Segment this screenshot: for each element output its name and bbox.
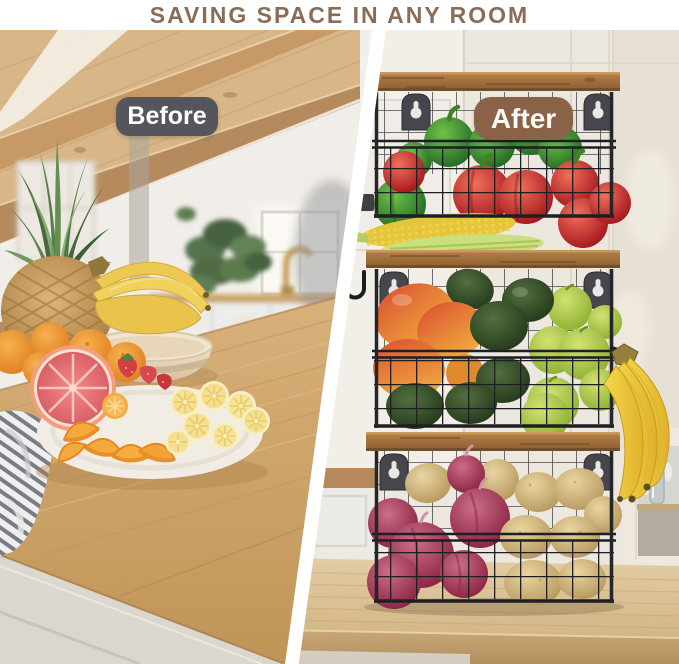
wood-lid-top [366,72,620,91]
after-label-pill: After [474,97,573,140]
banner-title: SAVING SPACE IN ANY ROOM [150,2,529,29]
basket-tier-bottom [366,432,622,609]
basket-tier-middle [346,250,622,441]
wood-lid-middle [366,250,620,268]
wood-lid-bottom [366,432,620,451]
wall-mount-bracket [584,94,612,130]
wall-mount-bracket [380,454,408,490]
wall-bar [350,194,374,211]
before-after-photos: Before After [0,30,679,664]
wall-mount-bracket [402,94,430,130]
before-label: Before [127,102,206,131]
banner: SAVING SPACE IN ANY ROOM [0,0,679,30]
after-label: After [491,103,556,135]
product-image: SAVING SPACE IN ANY ROOM [0,0,679,664]
before-label-pill: Before [116,97,218,136]
